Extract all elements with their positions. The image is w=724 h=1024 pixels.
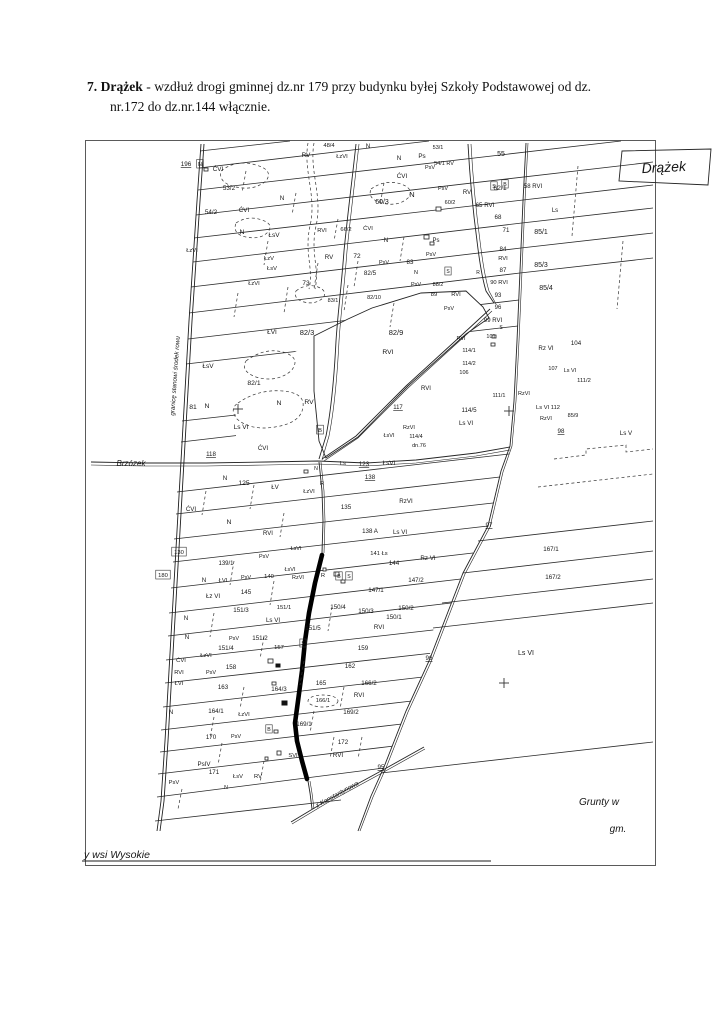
map-label: RV	[302, 152, 311, 159]
caption-text: - wzdłuż drogi gminnej dz.nr 179 przy bu…	[143, 79, 591, 94]
map-label: N	[414, 270, 418, 276]
map-label: 81	[189, 404, 197, 411]
page: { "page": { "heading_bold": "7. Drążek",…	[0, 0, 724, 1024]
map-label: ŁzVI	[248, 281, 260, 287]
map-label: N	[240, 229, 245, 236]
map-label: 73	[302, 280, 310, 287]
map-label: N	[366, 143, 371, 150]
map-label: 145	[241, 589, 252, 596]
map-label: PsV	[426, 252, 436, 258]
map-title-handwritten: Drążek	[641, 158, 687, 176]
map-label: RzVI	[540, 416, 552, 422]
map-label: 138	[365, 474, 376, 481]
map-label: 140	[264, 574, 274, 580]
map-label: ĆVI	[363, 225, 373, 232]
map-label: RVI	[456, 336, 466, 342]
map-label: RVI	[498, 256, 508, 262]
map-label: 62/1	[493, 185, 506, 192]
map-label: SVI	[288, 753, 298, 759]
map-label: 72	[353, 253, 361, 260]
map-label: dn.76	[412, 443, 426, 449]
map-label: ŁVI	[175, 681, 184, 687]
map-label: 83	[407, 259, 414, 266]
map-label: N	[185, 634, 189, 641]
map-label: 96	[495, 305, 502, 311]
map-label: ŁsV	[202, 363, 214, 370]
map-label: 71	[503, 227, 510, 234]
map-label: RVI	[421, 386, 431, 392]
map-label: 114/1	[462, 348, 475, 354]
map-label: 114/5	[461, 407, 477, 414]
map-label: 101	[486, 334, 495, 340]
map-label: ĆVI	[213, 164, 224, 173]
map-label: 54/2	[205, 209, 218, 216]
map-label: PsV	[231, 734, 241, 740]
map-label: ŁzVI	[336, 154, 348, 160]
caption-line2: nr.172 do dz.nr.144 włącznie.	[110, 99, 270, 114]
boundary-note: granicę stanowi środek rowu	[169, 335, 182, 416]
map-label: 95	[378, 764, 385, 771]
map-label: 166/1	[316, 698, 331, 704]
map-label: B	[318, 428, 322, 434]
map-label: Rz VI	[538, 345, 553, 352]
map-label: 196	[181, 161, 192, 168]
map-label: R	[321, 573, 325, 579]
map-label: 180	[158, 573, 168, 579]
map-label: RVI	[263, 531, 273, 537]
map-label: N	[224, 785, 228, 791]
map-label: 111/2	[577, 378, 591, 384]
map-label: 165	[316, 680, 327, 687]
map-label: ĆVI	[186, 506, 197, 513]
map-label: N	[223, 475, 227, 482]
map-label: Rz VI	[420, 555, 435, 562]
map-label: B	[337, 574, 341, 580]
map-label: 82/5	[364, 270, 377, 277]
map-label: N	[169, 709, 173, 716]
map-label: 163	[218, 684, 229, 691]
map-label: N	[384, 237, 388, 244]
map-label: PsV	[379, 260, 389, 266]
map-label: 60/2	[445, 200, 456, 206]
map-label: 167/2	[545, 574, 561, 581]
map-label: N	[205, 403, 210, 410]
bottom-note: y wsi Wysokie	[83, 849, 150, 861]
map-label: Łz VI	[206, 593, 220, 600]
map-label: 84	[500, 246, 507, 253]
map-label: 150/2	[398, 605, 414, 612]
map-label: 141 Łs	[370, 551, 388, 557]
map-label: ŁzVI	[200, 653, 212, 659]
map-label: Ls VI	[266, 617, 280, 624]
map-label: 90 RVI	[490, 280, 508, 286]
map-label: PsV	[229, 636, 239, 642]
map-label: B	[267, 727, 271, 733]
map-label: RzVI	[292, 575, 304, 581]
map-label: 89	[431, 292, 437, 298]
map-label: 159	[358, 645, 369, 652]
map-label: Ps	[432, 238, 439, 244]
map-label: 98	[558, 428, 565, 435]
map-label: 164/1	[208, 708, 224, 715]
map-drawing: 196NĆVI48/4NRVŁzVINPs53/15554/1 RVPsVĆVI…	[86, 141, 655, 865]
map-label: N	[198, 162, 202, 168]
map-label: RVI	[374, 624, 384, 631]
map-label: ŁsVI	[284, 567, 295, 573]
map-label: ĆVI	[397, 171, 408, 180]
map-label: ŁzVI	[238, 712, 250, 718]
map-label: Ls V	[620, 430, 633, 437]
map-label: 87	[500, 267, 507, 274]
map-label: 85/9	[568, 413, 579, 419]
map-label: 82/3	[300, 328, 315, 337]
map-label: 170	[206, 734, 217, 741]
map-label: RV	[463, 190, 471, 196]
map-label: 139/1	[218, 561, 234, 567]
map-label: RV	[304, 399, 314, 406]
map-label: ŁzVI	[186, 248, 198, 254]
map-label: 151/5	[305, 625, 321, 632]
map-label: 151/1	[277, 605, 292, 611]
map-label: 167/1	[543, 546, 559, 553]
map-label: RzVI	[399, 498, 413, 505]
map-label: 82/9	[389, 328, 404, 337]
map-label: RzVI	[518, 391, 530, 397]
map-label: 97	[486, 522, 493, 529]
map-label: 169/1	[296, 721, 312, 728]
map-label: S	[446, 269, 450, 275]
map-label: 60/3	[375, 199, 389, 206]
map-label: PsV	[444, 306, 454, 312]
map-label: RV	[254, 774, 262, 780]
map-label: 138 A	[362, 528, 379, 535]
map-label: ŁsV	[233, 774, 243, 780]
map-label: RVI	[382, 349, 393, 356]
map-label: ŁV	[271, 484, 279, 491]
map-label: ĆVI	[176, 657, 186, 664]
map-label: ĆVI	[258, 445, 269, 452]
map-label: ŁsV	[267, 266, 277, 272]
map-label: ŁsV	[268, 232, 280, 239]
map-label: N	[280, 195, 285, 202]
map-label: 104	[571, 340, 582, 347]
map-label: ĆVI	[239, 205, 250, 214]
map-label: 106	[459, 370, 468, 376]
map-label: Ls VI	[393, 529, 407, 536]
map-label: ŁsVI	[290, 546, 301, 552]
map-label: 85/1	[534, 229, 548, 236]
map-label: N	[397, 155, 402, 162]
map-label: RVI	[354, 692, 364, 699]
map-label: N	[202, 577, 206, 584]
map-label: N	[314, 466, 318, 472]
map-label: N	[227, 519, 232, 526]
map-label: S	[347, 574, 351, 580]
map-label: PsV	[425, 165, 435, 171]
map-label: PsV	[241, 575, 251, 581]
map-label: 85/4	[539, 285, 553, 292]
map-label: 88/2	[433, 282, 444, 288]
map-label: R	[320, 481, 324, 487]
map-label: 83/1	[328, 298, 339, 304]
map-label: 123	[359, 461, 370, 468]
map-label: RVI	[317, 228, 327, 234]
map-label: 107	[548, 366, 557, 372]
map-label: N	[184, 615, 188, 622]
map-label: ŁVI	[267, 329, 277, 336]
map-label: 117	[393, 405, 403, 411]
map-label: 53/2	[223, 185, 236, 192]
caption: 7. Drążek - wzdłuż drogi gminnej dz.nr 1…	[87, 77, 649, 116]
map-label: RVI	[174, 670, 184, 676]
map-label: 144	[389, 560, 400, 567]
map-label: 114/4	[409, 434, 422, 440]
map-label: PsV	[411, 282, 421, 288]
map-label: ŁzVI	[303, 489, 315, 495]
map-label: 130	[174, 550, 184, 556]
map-label: RVI	[451, 292, 461, 298]
map-label: 147/1	[368, 587, 384, 594]
map-label: Ls VI 112	[536, 405, 560, 411]
map-label: Ls	[340, 461, 346, 467]
map-label: PsV	[259, 554, 269, 560]
map-label: 135	[341, 504, 352, 511]
map-label: 68	[495, 214, 502, 221]
map-label: 66/2	[340, 227, 351, 233]
map-label: 169/2	[343, 709, 359, 716]
map-label: 162	[345, 663, 356, 670]
map-label: 171	[209, 769, 220, 776]
map-label: 53/1	[433, 145, 444, 151]
map-label: 99 RVI	[484, 318, 503, 324]
map-label: Ls	[552, 208, 558, 214]
map-label: N	[277, 400, 282, 407]
map-label: 172	[338, 739, 349, 746]
map-label: 65 RVI	[476, 202, 495, 209]
map-label: 151/3	[233, 607, 249, 614]
caption-number-name: 7. Drążek	[87, 79, 143, 94]
map-label: ŁsVI	[383, 460, 396, 467]
map-label: 166/2	[361, 680, 377, 687]
map-label: 150/1	[386, 614, 402, 621]
cadastral-map: 196NĆVI48/4NRVŁzVINPs53/15554/1 RVPsVĆVI…	[85, 140, 656, 866]
map-label: 58 RVI	[524, 184, 543, 190]
map-label: 164/3	[271, 686, 287, 693]
map-label: 48/4	[323, 143, 335, 149]
map-label: ŁVI	[219, 578, 228, 584]
map-label: Ls VI	[564, 368, 577, 374]
map-label: PsV	[438, 186, 448, 192]
village-brzozek: Brzózek	[117, 459, 147, 468]
map-label: Ps	[418, 153, 425, 160]
map-label: R	[476, 270, 480, 276]
map-label: PsIV	[197, 761, 211, 768]
note-gm: gm.	[610, 824, 627, 835]
map-label: 93	[495, 293, 502, 299]
map-label: Ls VI	[518, 650, 534, 657]
map-label: Ls VI	[234, 424, 249, 431]
map-label: 157	[274, 645, 284, 651]
map-label: 111/1	[493, 393, 506, 399]
map-label: 150/3	[358, 608, 374, 615]
map-label: 85/3	[534, 262, 548, 269]
map-label: Ls VI	[459, 420, 473, 427]
map-label: 82/1	[247, 380, 260, 387]
map-label: RV	[325, 254, 334, 261]
map-label: 96	[426, 655, 433, 662]
map-label: 151/4	[218, 645, 234, 652]
map-label: 82/10	[367, 295, 381, 301]
map-label: 118	[206, 451, 216, 458]
map-label: 55	[497, 151, 505, 158]
map-label: RzVI	[403, 425, 415, 431]
map-label: 114/2	[462, 361, 475, 367]
map-label: 158	[226, 664, 237, 671]
map-label: 147/2	[408, 577, 424, 584]
map-label: 54/1 RV	[434, 161, 454, 167]
map-label: 150/4	[330, 604, 346, 611]
map-label: PsV	[169, 780, 180, 786]
map-label: 125	[238, 480, 250, 487]
map-label: N	[409, 190, 414, 199]
map-label: RVI	[333, 752, 343, 759]
map-label: ŁsVI	[383, 433, 394, 439]
note-grunty: Grunty w	[579, 797, 620, 808]
map-labels: 196NĆVI48/4NRVŁzVINPs53/15554/1 RVPsVĆVI…	[83, 143, 687, 861]
road-name-konstantynowa: z Konstantynowa	[314, 780, 361, 810]
map-label: ŁzV	[264, 256, 274, 262]
map-label: 151/2	[252, 635, 268, 642]
map-label: PsV	[206, 670, 216, 676]
